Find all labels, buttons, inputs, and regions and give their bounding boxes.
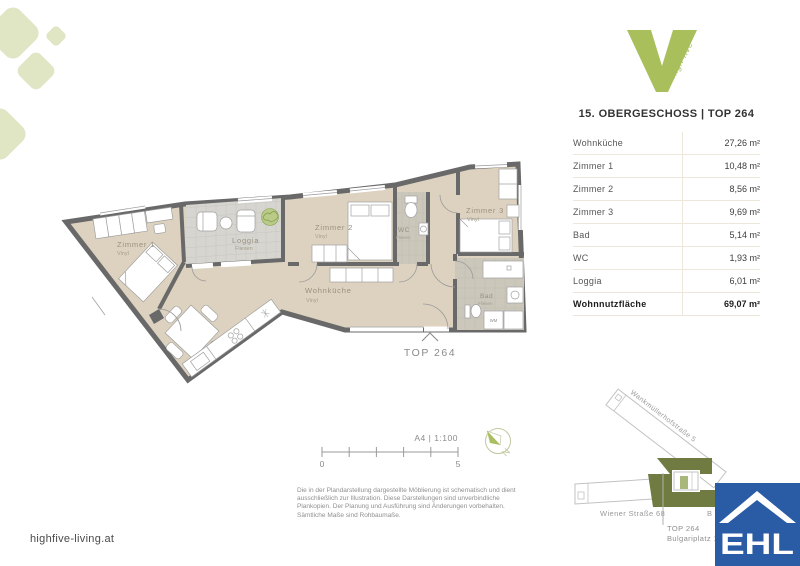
room-label: Loggia bbox=[573, 276, 602, 286]
toilet bbox=[465, 305, 481, 319]
table-row: Zimmer 2 8,56 m² bbox=[573, 178, 760, 201]
ehl-logo: EHL bbox=[715, 483, 800, 566]
scale-bar: A4 | 1:100 0 5 bbox=[312, 428, 466, 470]
loggia-table bbox=[220, 217, 232, 229]
scale-max: 5 bbox=[456, 459, 461, 469]
sheet-scale-label: A4 | 1:100 bbox=[414, 433, 458, 443]
room-floor: Vinyl bbox=[467, 217, 479, 223]
room-label: Zimmer 3 bbox=[573, 207, 613, 217]
lounger bbox=[237, 210, 255, 232]
room-area: 5,14 m² bbox=[729, 230, 760, 240]
unit-marker: TOP 264 bbox=[404, 333, 456, 359]
table-row: Loggia 6,01 m² bbox=[573, 270, 760, 293]
disclaimer-text: Die in der Plandarstellung dargestellte … bbox=[297, 487, 516, 520]
ehl-logo-text: EHL bbox=[720, 528, 794, 561]
room-area: 8,56 m² bbox=[729, 184, 760, 194]
room-label: Bad bbox=[573, 230, 590, 240]
north-label: N bbox=[500, 446, 513, 459]
room-floor: Fliesen bbox=[396, 235, 411, 240]
roof-icon bbox=[719, 491, 796, 523]
bath-cabinet bbox=[504, 311, 523, 329]
room-label: Zimmer 1 bbox=[573, 161, 613, 171]
marker-top-label: TOP 264 bbox=[667, 524, 700, 533]
unit-marker-label: TOP 264 bbox=[404, 347, 456, 359]
room-name: Bad bbox=[480, 293, 493, 300]
room-floor: Vinyl bbox=[306, 298, 318, 304]
street-label-partial: B bbox=[707, 509, 712, 518]
disclaimer-line: Die in der Plandarstellung dargestellte … bbox=[297, 487, 516, 495]
table-total-row: Wohnnutzfläche 69,07 m² bbox=[573, 293, 760, 316]
room-name: Zimmer 2 bbox=[315, 223, 353, 232]
total-area: 69,07 m² bbox=[724, 299, 760, 309]
marker-address-label: Bulgariplatz 11 bbox=[667, 534, 722, 543]
lounger bbox=[197, 212, 217, 231]
room-floor: Fliesen bbox=[235, 246, 253, 252]
project-building bbox=[648, 458, 716, 507]
highlighted-unit bbox=[680, 476, 688, 489]
room-area: 10,48 m² bbox=[724, 161, 760, 171]
floor-plan-drawing: Zimmer 1 Vinyl Loggia Fliesen Zimmer 2 V… bbox=[55, 135, 535, 400]
room-label: Zimmer 2 bbox=[573, 184, 613, 194]
room-area: 9,69 m² bbox=[729, 207, 760, 217]
compass-icon: N bbox=[477, 424, 521, 476]
disclaimer-line: Sämtliche Maße sind Rohbaumaße. bbox=[297, 512, 516, 520]
kitchen-sideboard bbox=[330, 268, 393, 282]
table-divider bbox=[682, 132, 683, 316]
total-label: Wohnnutzfläche bbox=[573, 299, 647, 309]
room-area: 27,26 m² bbox=[724, 138, 760, 148]
room-area: 1,93 m² bbox=[729, 253, 760, 263]
website-url: highfive-living.at bbox=[30, 533, 114, 545]
scale-min: 0 bbox=[320, 459, 325, 469]
deco-diamond bbox=[0, 104, 30, 163]
shelf bbox=[507, 205, 519, 217]
room-name: Loggia bbox=[232, 236, 259, 245]
room-floor: Vinyl bbox=[315, 234, 327, 240]
table-row: WC 1,93 m² bbox=[573, 247, 760, 270]
room-label: Wohnküche bbox=[573, 138, 623, 148]
room-name: Wohnküche bbox=[305, 286, 352, 295]
room-name: Zimmer 3 bbox=[466, 206, 504, 215]
floor-plan-page: high five 15. OBERGESCHOSS | TOP 264 Woh… bbox=[0, 0, 800, 566]
room-name: WC bbox=[398, 227, 410, 234]
area-table: Wohnküche 27,26 m² Zimmer 1 10,48 m² Zim… bbox=[573, 132, 760, 316]
appliance-label: WM bbox=[490, 318, 498, 323]
deco-diamond bbox=[45, 25, 68, 48]
deco-diamond bbox=[15, 50, 57, 92]
room-floor: Fliesen bbox=[478, 301, 493, 306]
disclaimer-line: Plankopien. Der Planung und Ausführung s… bbox=[297, 503, 516, 511]
room-area: 6,01 m² bbox=[729, 276, 760, 286]
bed-double bbox=[460, 219, 512, 252]
table-row: Bad 5,14 m² bbox=[573, 224, 760, 247]
table-row: Wohnküche 27,26 m² bbox=[573, 132, 760, 155]
page-title: 15. OBERGESCHOSS | TOP 264 bbox=[565, 108, 768, 120]
room-label: WC bbox=[573, 253, 589, 263]
toilet bbox=[405, 196, 417, 218]
street-label-horizontal: Wiener Straße 68 bbox=[600, 509, 665, 518]
sideboard bbox=[312, 245, 347, 262]
room-floor: Vinyl bbox=[117, 251, 129, 257]
bed-double bbox=[348, 202, 392, 260]
vanity bbox=[483, 261, 523, 278]
table-row: Zimmer 3 9,69 m² bbox=[573, 201, 760, 224]
ehl-logo-graphic: EHL bbox=[715, 483, 800, 566]
highfive-logo: high five bbox=[612, 20, 712, 98]
plant-icon bbox=[262, 209, 279, 226]
room-name: Zimmer 1 bbox=[117, 240, 155, 249]
table-row: Zimmer 1 10,48 m² bbox=[573, 155, 760, 178]
loggia-tiles bbox=[183, 195, 285, 270]
